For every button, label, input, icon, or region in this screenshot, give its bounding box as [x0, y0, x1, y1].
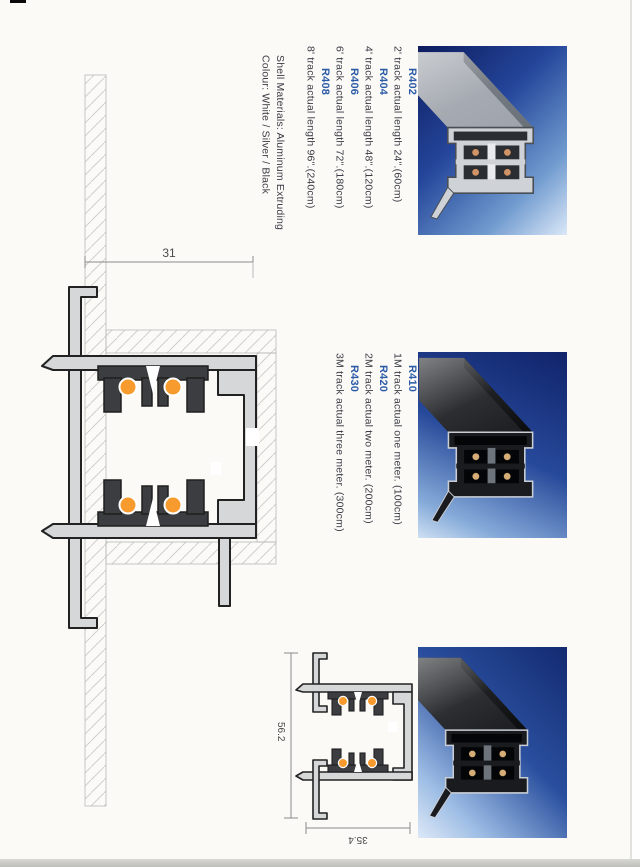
catalog-page: 31	[0, 0, 640, 867]
product-code-r402: R402	[405, 46, 420, 209]
product-desc-r420: 2M track actual two meter. (200cm)	[361, 353, 376, 532]
black-extrusion-render	[418, 352, 567, 538]
product-code-r430: R430	[347, 353, 362, 532]
track-meter-list: R410 1M track actual one meter. (100cm) …	[332, 353, 419, 532]
conductor-wires-small	[338, 696, 376, 767]
profile-notch	[388, 722, 397, 732]
product-desc-r404: 4' track actual length 48".(120cm)	[361, 46, 376, 209]
product-desc-r408: 8' track actual length 96".(240cm)	[303, 46, 318, 209]
dim-label-56-2: 56.2	[275, 722, 286, 742]
product-photo-r402-silver-track	[418, 46, 567, 235]
product-desc-r406: 6' track actual length 72".(180cm)	[332, 46, 347, 209]
page-bottom-edge	[0, 859, 640, 867]
product-code-r404: R404	[376, 46, 391, 209]
product-code-r410: R410	[405, 353, 420, 532]
dimension-35-4	[306, 822, 410, 834]
recessed-track-cross-section-diagram: 31	[30, 70, 290, 815]
black-extrusion-render	[418, 647, 567, 838]
dim-label-35-4: 35.4	[348, 834, 368, 845]
track-length-list: R402 2' track actual length 24".(60cm) R…	[303, 46, 419, 209]
product-desc-r410: 1M track actual one meter. (100cm)	[390, 353, 405, 532]
colour-line: Colour: White / Silver / Black	[258, 55, 273, 230]
product-code-r406: R406	[347, 46, 362, 209]
aluminum-profile-small	[296, 653, 412, 819]
profile-notch	[246, 428, 259, 446]
surface-track-cross-section-diagram: 56.2	[270, 645, 420, 855]
product-desc-r430: 3M track actual three meter. (300cm)	[332, 353, 347, 532]
page-right-margin	[632, 0, 640, 867]
silver-extrusion-render	[418, 46, 567, 235]
product-photo-r410-black-track	[418, 352, 567, 538]
product-code-r420: R420	[376, 353, 391, 532]
product-photo-black-track-closeup	[418, 647, 567, 838]
dim-label-31: 31	[162, 246, 176, 260]
product-desc-r402: 2' track actual length 24".(60cm)	[390, 46, 405, 209]
shell-materials-line: Shell Materials: Aluminum Extruding	[273, 55, 288, 230]
profile-notch	[211, 462, 221, 475]
product-code-r408: R408	[318, 46, 333, 209]
scan-corner-mark	[10, 0, 26, 3]
page-edge-line	[630, 0, 632, 867]
materials-note: Shell Materials: Aluminum Extruding Colo…	[258, 55, 287, 230]
